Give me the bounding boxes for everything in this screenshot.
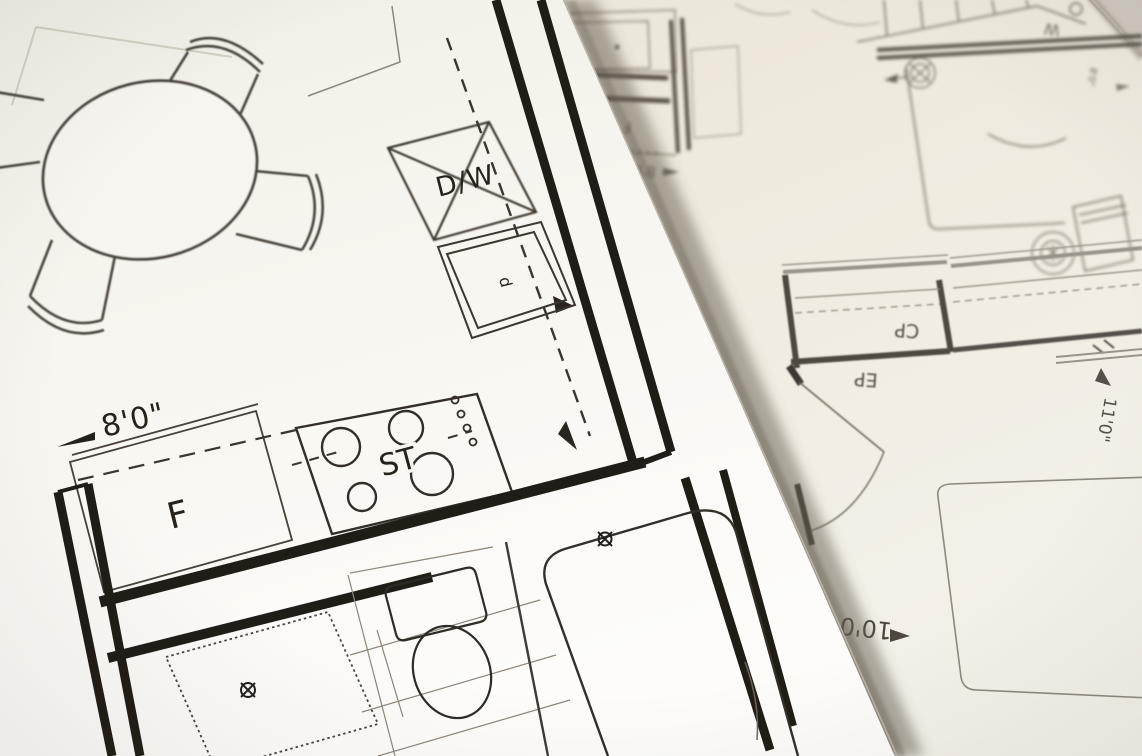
photo-vignette bbox=[0, 0, 1142, 756]
floorplan-photo-svg: F 8'0" W 8'0" bbox=[0, 0, 1142, 756]
photo-of-floor-plans: F 8'0" W 8'0" bbox=[0, 0, 1142, 756]
